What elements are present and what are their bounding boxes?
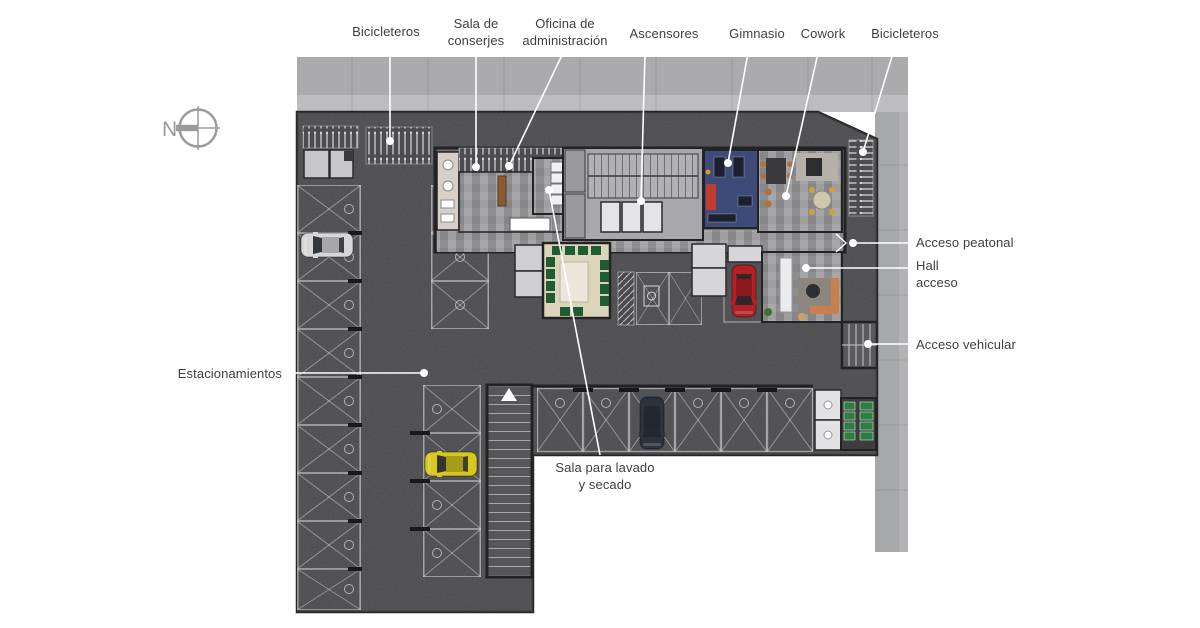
elevator-core <box>563 148 703 240</box>
electrical-room <box>510 218 550 231</box>
round-table <box>813 191 831 209</box>
label-estacionamientos: Estacionamientos <box>160 365 282 382</box>
bathrooms <box>437 152 459 230</box>
entrance-hall <box>762 252 842 322</box>
label-acceso-vehicular: Acceso vehicular <box>916 336 1016 353</box>
label-hall-acceso: Hall acceso <box>916 257 958 291</box>
elevator-cabins <box>601 202 662 232</box>
label-bicicleteros-top: Bicicleteros <box>336 23 436 40</box>
car-yellow <box>425 451 477 478</box>
cowork-table <box>766 158 786 184</box>
compass-icon: N <box>162 106 220 150</box>
floor-plan: N <box>0 0 1200 628</box>
label-bicicleteros-right: Bicicleteros <box>855 25 955 42</box>
coffee-table <box>806 284 820 298</box>
multiuse-room <box>543 243 610 318</box>
vehicle-ramp-down <box>487 385 532 577</box>
sidewalk-top <box>297 57 908 112</box>
label-acceso-peatonal: Acceso peatonal <box>916 234 1014 251</box>
street-right <box>875 112 908 552</box>
gym-mat <box>706 184 716 210</box>
storage-rooms <box>304 150 353 178</box>
plant <box>764 308 772 316</box>
floor-plan-page: N Bicicleteros Sala de conserjes Oficina… <box>0 0 1200 628</box>
car-silver <box>301 232 353 259</box>
compass-north-letter: N <box>162 118 177 141</box>
weight-bench <box>708 214 736 222</box>
reception-counter <box>780 258 792 312</box>
concierge-desk <box>498 176 506 206</box>
cowork-room <box>758 150 842 232</box>
treadmill <box>714 157 725 177</box>
car-dark <box>639 397 666 449</box>
treadmill <box>733 157 744 177</box>
bottom-right-rooms <box>815 390 876 450</box>
label-oficina-admin: Oficina de administración <box>500 15 630 49</box>
car-red <box>731 265 758 317</box>
label-ascensores: Ascensores <box>614 25 714 42</box>
label-sala-lavado: Sala para lavado y secado <box>545 459 665 493</box>
